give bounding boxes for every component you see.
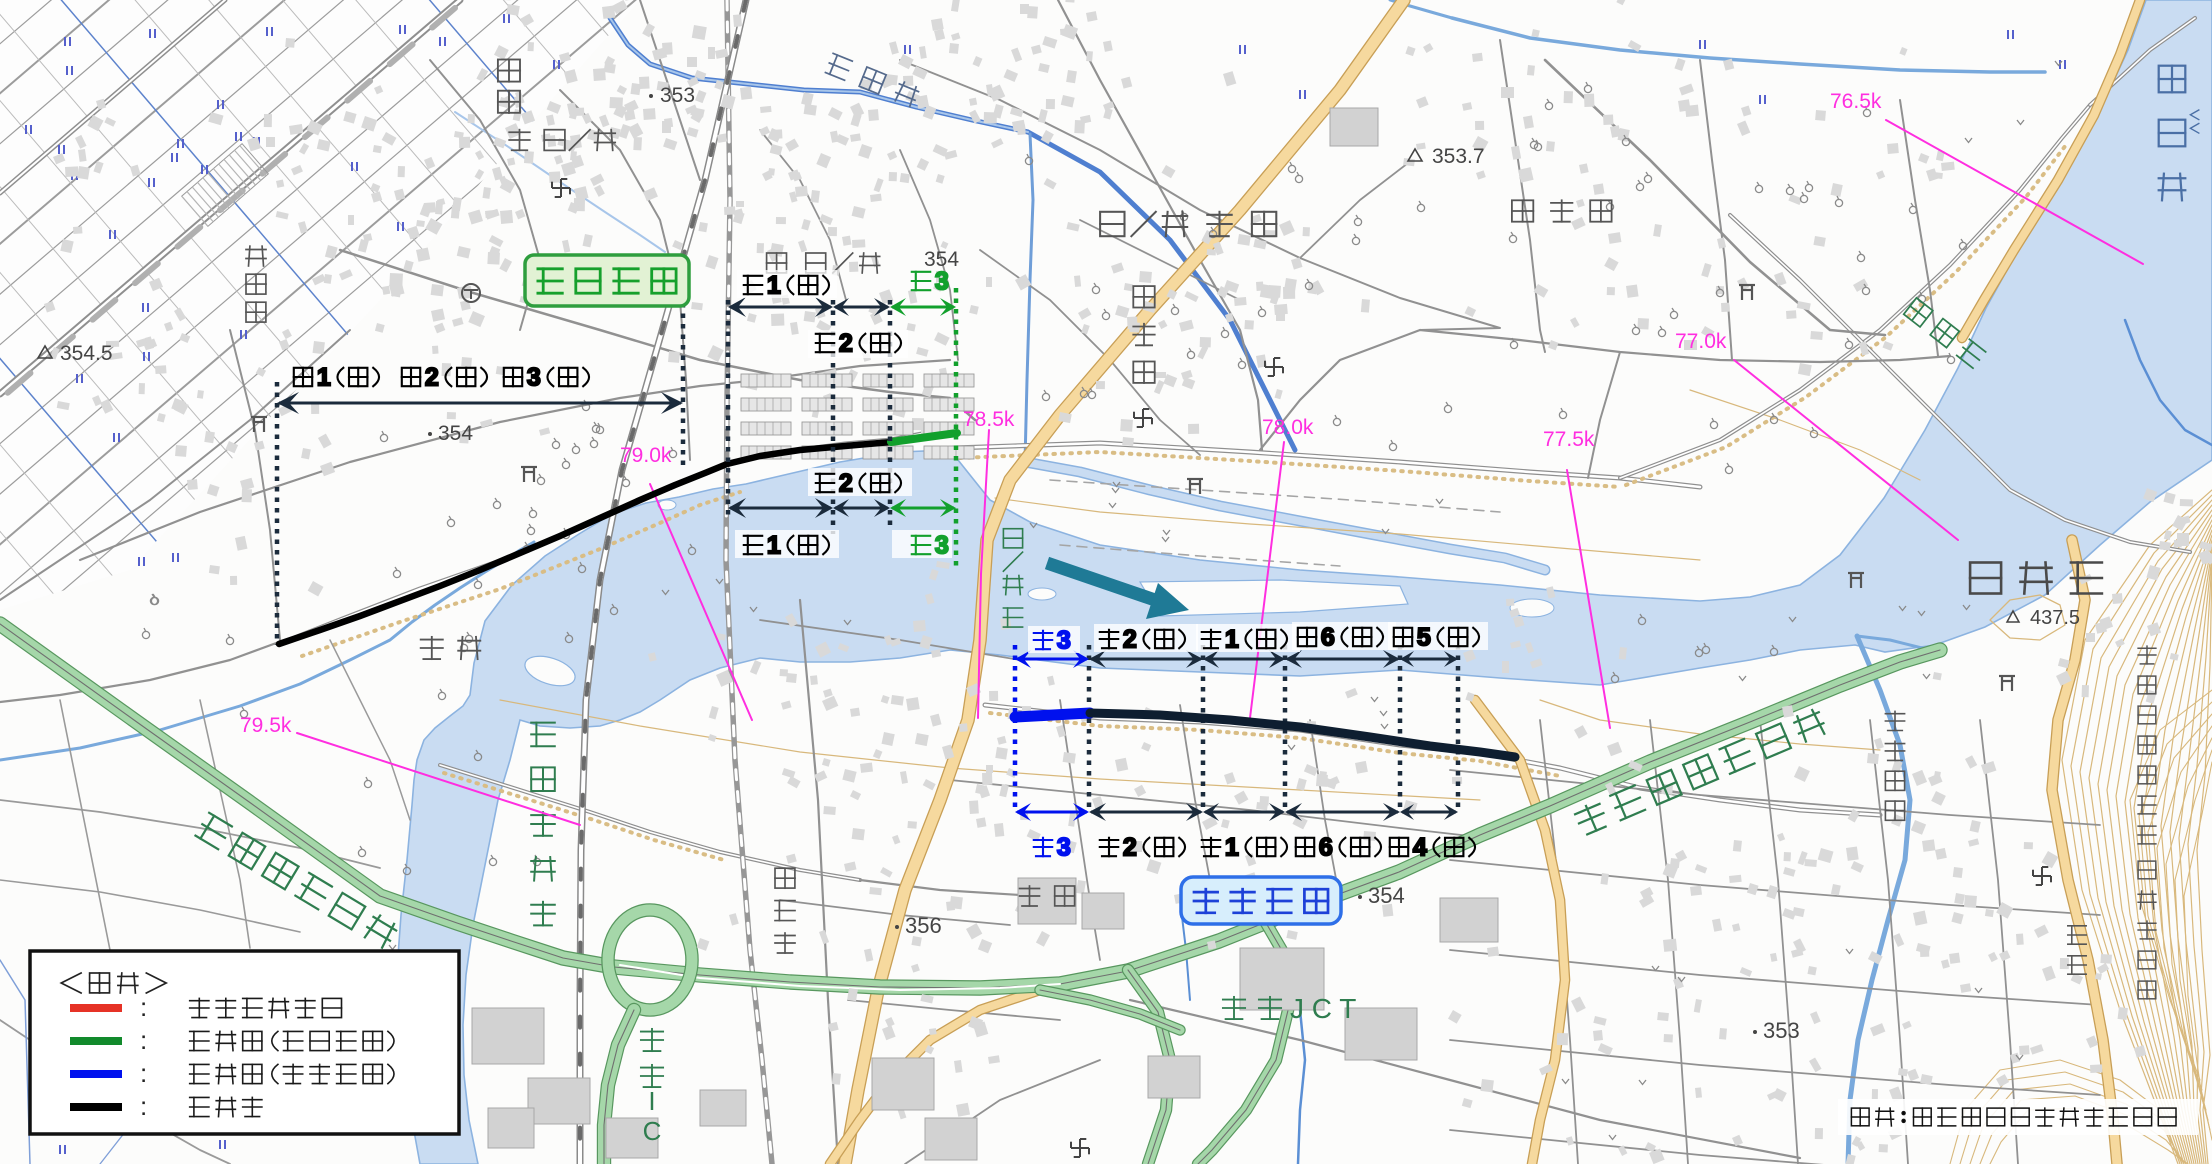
svg-text:353.7: 353.7 bbox=[1432, 145, 1485, 168]
svg-text:J C T: J C T bbox=[1290, 993, 1356, 1024]
svg-text:354: 354 bbox=[438, 422, 473, 445]
svg-text:77.0k: 77.0k bbox=[1675, 330, 1727, 353]
svg-text::: : bbox=[140, 1058, 147, 1088]
svg-text:437.5: 437.5 bbox=[2030, 607, 2080, 629]
svg-text:1: 1 bbox=[1225, 626, 1239, 654]
svg-text::: : bbox=[140, 992, 147, 1022]
svg-text:2: 2 bbox=[1123, 834, 1137, 862]
svg-text:79.0k: 79.0k bbox=[620, 444, 672, 467]
svg-text:79.5k: 79.5k bbox=[240, 714, 292, 737]
svg-text:353: 353 bbox=[660, 84, 695, 107]
svg-text:2: 2 bbox=[425, 364, 439, 392]
svg-text:6: 6 bbox=[1321, 624, 1335, 652]
svg-text:3: 3 bbox=[1057, 627, 1071, 655]
svg-text:78.0k: 78.0k bbox=[1262, 416, 1314, 439]
svg-text:353: 353 bbox=[1763, 1018, 1800, 1043]
svg-text:354.5: 354.5 bbox=[60, 342, 113, 365]
svg-text:2: 2 bbox=[1123, 626, 1137, 654]
svg-text:1: 1 bbox=[1225, 834, 1239, 862]
svg-text:78.5k: 78.5k bbox=[963, 408, 1015, 431]
svg-text::: : bbox=[140, 1025, 147, 1055]
svg-text:2: 2 bbox=[839, 470, 853, 498]
svg-text:3: 3 bbox=[1057, 834, 1071, 862]
svg-text:3: 3 bbox=[527, 364, 541, 392]
svg-text::: : bbox=[140, 1091, 147, 1121]
svg-text:4: 4 bbox=[1413, 834, 1427, 862]
svg-text:1: 1 bbox=[767, 532, 781, 560]
svg-text:3: 3 bbox=[935, 532, 949, 560]
svg-text:C: C bbox=[643, 1116, 662, 1146]
svg-text:76.5k: 76.5k bbox=[1830, 90, 1882, 113]
svg-text:77.5k: 77.5k bbox=[1543, 428, 1595, 451]
svg-text:1: 1 bbox=[767, 272, 781, 300]
svg-text:5: 5 bbox=[1417, 624, 1431, 652]
svg-text:356: 356 bbox=[905, 913, 942, 938]
svg-text:354: 354 bbox=[1368, 883, 1405, 908]
svg-text:3: 3 bbox=[935, 268, 949, 296]
svg-text:2: 2 bbox=[839, 330, 853, 358]
svg-text:1: 1 bbox=[317, 364, 331, 392]
svg-text:I: I bbox=[648, 1086, 655, 1116]
svg-text:6: 6 bbox=[1319, 834, 1333, 862]
